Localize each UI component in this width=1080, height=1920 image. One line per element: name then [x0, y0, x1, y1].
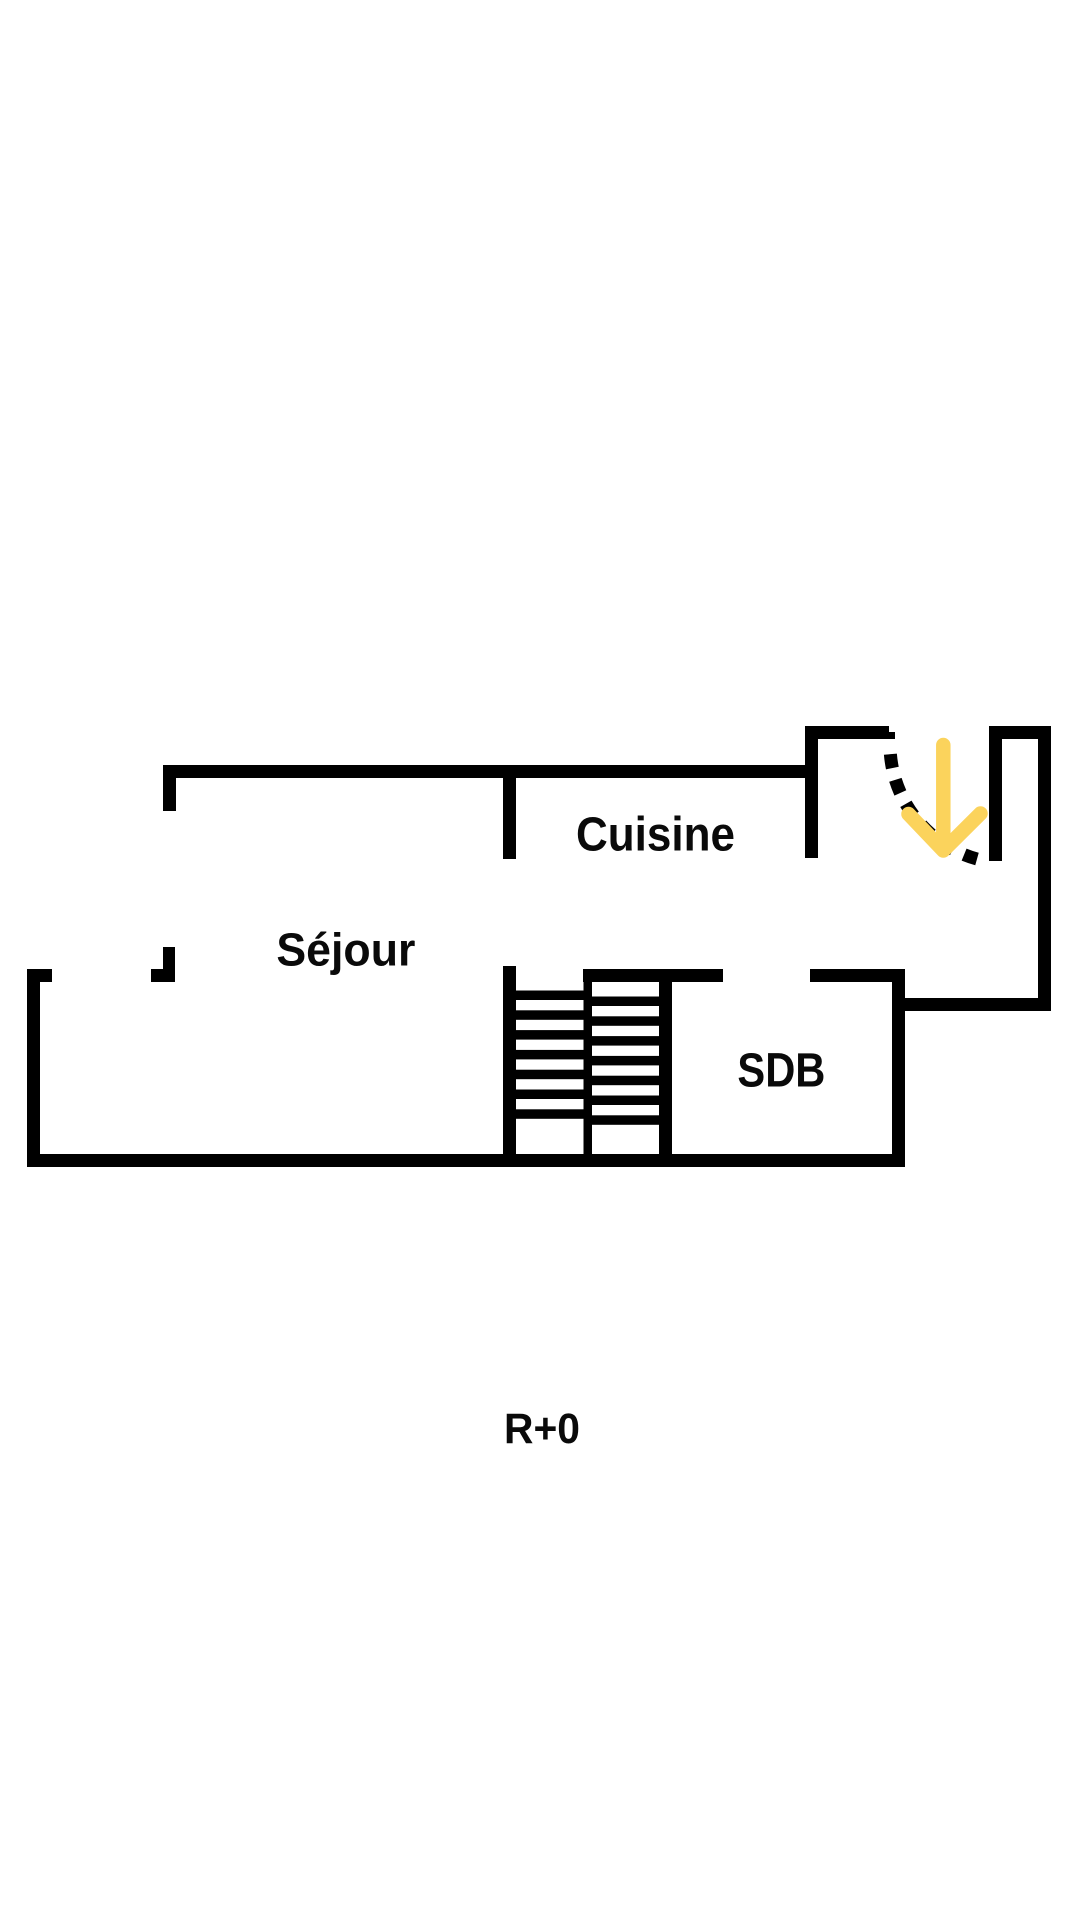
svg-text:Cuisine: Cuisine [576, 808, 735, 861]
svg-text:Séjour: Séjour [276, 923, 415, 975]
svg-text:R+0: R+0 [504, 1405, 580, 1453]
svg-text:SDB: SDB [737, 1045, 825, 1098]
